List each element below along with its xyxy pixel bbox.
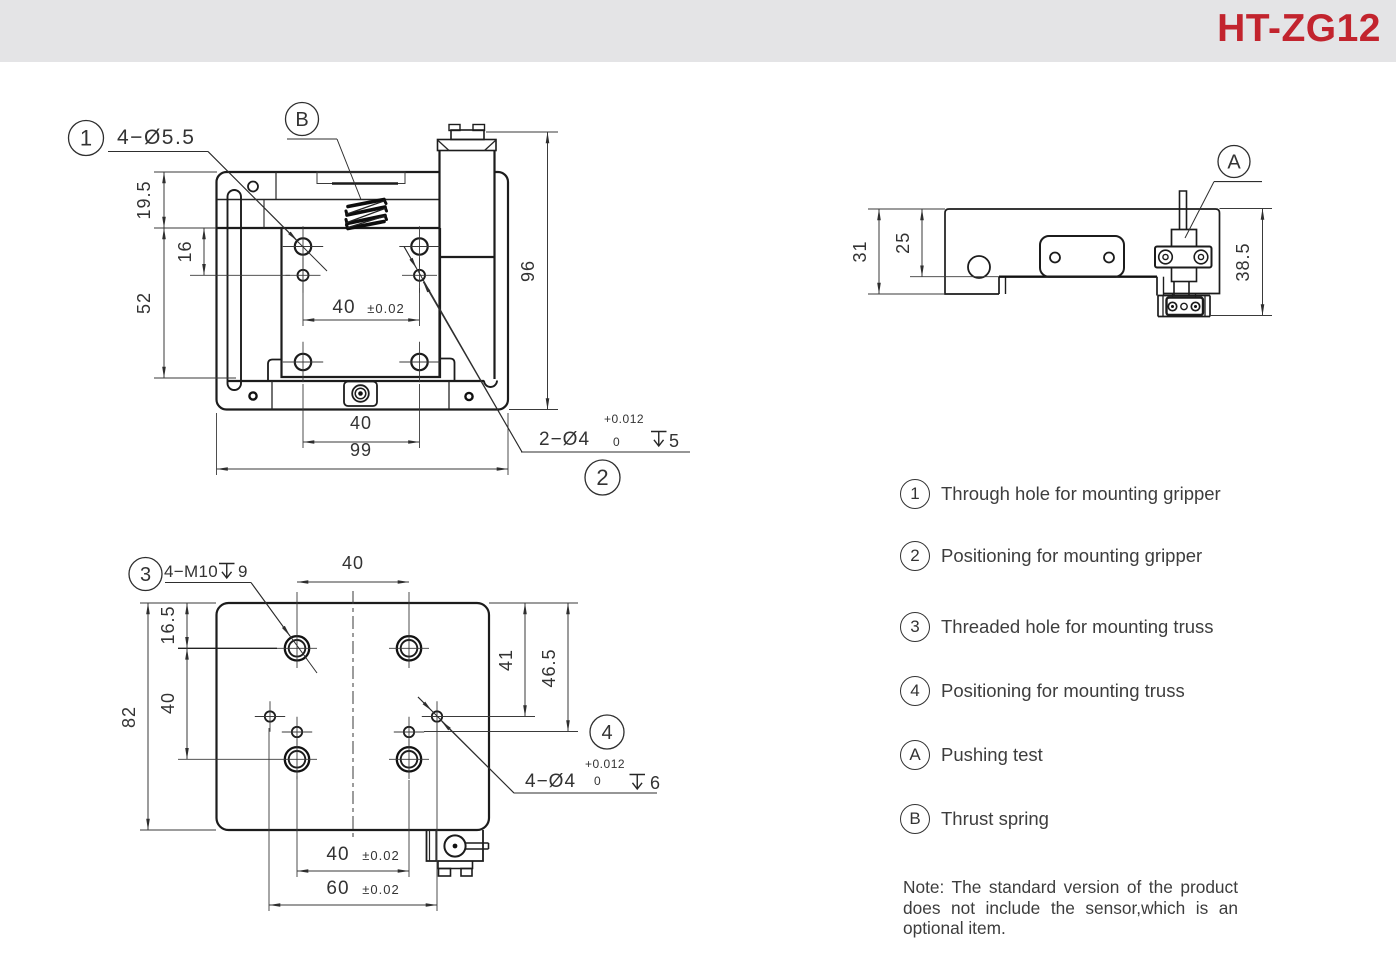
svg-text:9: 9 [238,562,247,581]
svg-text:40: 40 [332,297,355,318]
svg-text:+0.012: +0.012 [604,412,644,426]
svg-text:60: 60 [326,878,349,899]
svg-text:16.5: 16.5 [158,605,178,644]
svg-text:±0.02: ±0.02 [362,882,399,897]
svg-text:40: 40 [342,553,364,573]
svg-text:25: 25 [893,232,913,254]
svg-text:3: 3 [140,564,151,586]
svg-text:±0.02: ±0.02 [367,301,404,316]
svg-text:40: 40 [158,692,178,714]
svg-text:4: 4 [601,722,612,744]
svg-text:+0.012: +0.012 [585,757,625,771]
svg-text:0: 0 [594,774,601,788]
svg-text:5: 5 [669,431,679,451]
svg-text:2: 2 [596,465,608,490]
svg-text:2−Ø4: 2−Ø4 [539,429,590,450]
svg-text:82: 82 [119,706,139,728]
svg-text:±0.02: ±0.02 [362,848,399,863]
svg-text:1: 1 [80,126,92,151]
svg-text:41: 41 [496,649,516,671]
svg-text:A: A [1227,152,1241,174]
svg-text:99: 99 [350,440,372,460]
svg-text:6: 6 [650,773,660,793]
svg-text:96: 96 [518,260,538,282]
svg-text:31: 31 [850,240,870,262]
svg-text:16: 16 [175,240,195,262]
svg-text:4−Ø4: 4−Ø4 [525,771,576,792]
svg-text:40: 40 [350,413,372,433]
svg-text:19.5: 19.5 [134,180,154,219]
svg-text:0: 0 [613,435,620,449]
svg-text:52: 52 [134,292,154,314]
svg-text:40: 40 [326,844,349,865]
svg-text:38.5: 38.5 [1233,242,1253,281]
svg-text:B: B [295,109,308,131]
svg-text:4−Ø5.5: 4−Ø5.5 [117,126,195,149]
svg-text:46.5: 46.5 [539,648,559,687]
svg-text:4−M10: 4−M10 [164,562,218,581]
